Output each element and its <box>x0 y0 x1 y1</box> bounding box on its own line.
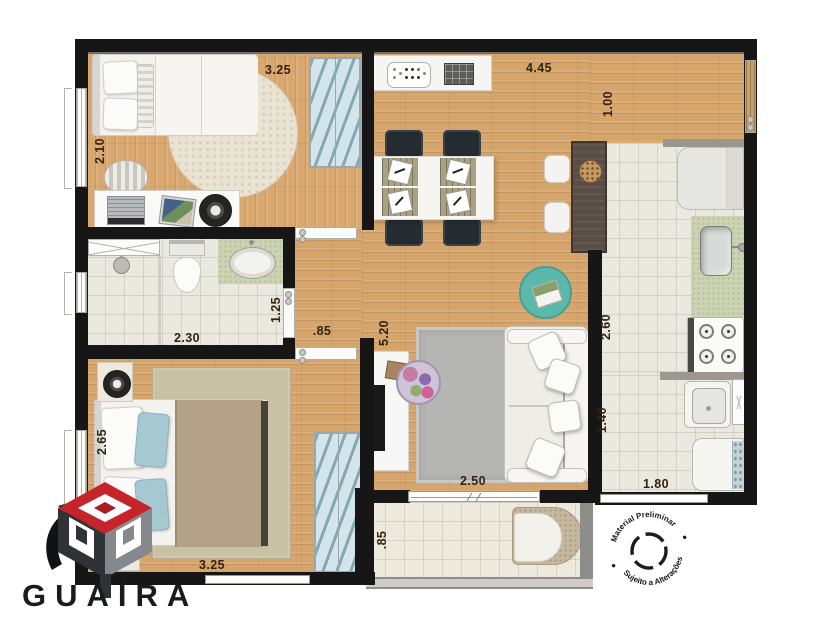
place-setting <box>382 188 418 216</box>
cooktop <box>387 62 431 88</box>
nightstand-wheel-clock <box>103 370 131 398</box>
kitchen-sink <box>700 226 732 276</box>
balcony-right-wall <box>580 502 593 580</box>
door-handle <box>299 357 306 364</box>
cooktop-knobs <box>393 68 396 71</box>
bar-stool <box>544 202 570 233</box>
dim-balcony-depth: .85 <box>375 531 389 550</box>
kitchenette-counter <box>364 55 492 91</box>
door-handle <box>299 236 306 243</box>
wall-top <box>75 39 757 54</box>
bathroom-window-mark <box>64 272 72 315</box>
stove-burner <box>699 349 714 364</box>
shower-head <box>113 257 130 274</box>
bed1-striped-cushion <box>137 64 154 128</box>
bed1-pillow <box>102 60 139 95</box>
place-setting <box>440 158 476 186</box>
bedroom2-nightstand-top <box>97 362 133 402</box>
wall-balcony-west <box>355 488 368 578</box>
guaira-logo-text: GUAÍRA <box>22 578 198 614</box>
plate <box>387 159 414 186</box>
dim-hall-width: .85 <box>313 324 332 338</box>
door-handle <box>299 229 306 236</box>
magazine <box>531 280 563 309</box>
stamp-text-bottom: Sujeito a Alterações <box>620 553 690 594</box>
bar-counter <box>571 141 607 253</box>
dim-living-width: 4.45 <box>526 61 552 75</box>
plate <box>445 159 472 186</box>
teal-pouf <box>519 266 572 319</box>
dim-kitchen-depth: 2.60 <box>599 314 613 340</box>
bedroom1-desk <box>94 190 240 228</box>
stove-side <box>688 318 694 372</box>
dimension-bar-laundry <box>600 494 708 503</box>
laundry-tank <box>684 381 731 428</box>
dim-laundry-width: 1.80 <box>643 477 669 491</box>
bathroom-sink <box>229 247 276 279</box>
dim-laundry-depth: 1.40 <box>595 407 609 433</box>
counter-grill <box>444 63 474 85</box>
dim-living-depth: 5.20 <box>377 320 391 346</box>
stamp-dot <box>683 535 687 539</box>
svg-text:Material Preliminar: Material Preliminar <box>604 502 679 545</box>
bed1-pillow <box>102 97 138 130</box>
door-handle <box>285 291 292 298</box>
stove-burner <box>721 324 736 339</box>
dining-chair <box>385 218 423 246</box>
floorplan-canvas: 3.25 2.10 2.30 1.25 .85 2.65 3.25 <box>0 0 835 626</box>
washer-controls <box>732 441 744 489</box>
bathroom-window <box>76 272 87 313</box>
place-setting <box>440 188 476 216</box>
bedroom1-wardrobe <box>309 57 361 168</box>
stamp-inner-circle <box>628 530 670 572</box>
dining-chair <box>443 218 481 246</box>
dim-entry-width: 1.00 <box>601 91 615 117</box>
dim-living-door: 2.50 <box>460 474 486 488</box>
wall-bathroom-south <box>75 345 295 359</box>
stamp-dot <box>612 564 616 568</box>
floral-pouf <box>396 360 441 405</box>
laptop <box>107 196 145 225</box>
bathroom-faucet <box>249 240 254 245</box>
desk-picture <box>159 196 195 227</box>
desk-wheel-clock <box>199 194 232 227</box>
bed2-footboard <box>261 401 268 546</box>
stove-burner <box>721 349 736 364</box>
dimension-bar-bedroom2 <box>205 575 310 584</box>
door-handle <box>285 298 292 305</box>
sofa <box>504 326 588 483</box>
bedroom1-desk-chair <box>104 160 148 193</box>
dim-bathroom-width: 2.30 <box>174 331 200 345</box>
dining-chair <box>443 130 481 158</box>
balcony-railing <box>366 577 593 589</box>
washing-machine <box>692 438 744 491</box>
wall-bedroom1-south <box>75 227 295 239</box>
decor-bowl <box>579 160 602 183</box>
dining-chair <box>385 130 423 158</box>
preliminary-stamp: Material Preliminar Sujeito a Alterações <box>594 496 704 606</box>
place-setting <box>382 158 418 186</box>
fridge <box>677 147 744 210</box>
svg-text:Sujeito a Alterações: Sujeito a Alterações <box>620 553 690 594</box>
wall-bathroom-east-upper <box>283 238 295 288</box>
plate <box>387 189 413 215</box>
dim-bedroom2-depth: 2.65 <box>95 429 109 455</box>
stove-burner <box>699 324 714 339</box>
door-handle <box>299 349 306 356</box>
toilet-tank <box>169 240 205 256</box>
bar-stool <box>544 155 570 183</box>
bedroom1-single-bed <box>92 54 258 136</box>
bedroom1-window <box>76 88 87 187</box>
window-handle <box>747 124 754 131</box>
bed1-duvet <box>155 56 258 134</box>
wall-living-east <box>588 250 602 492</box>
balcony-armchair <box>512 507 582 565</box>
bed1-duvet-fold <box>201 56 202 134</box>
kitchen-threshold <box>663 139 746 147</box>
bed2-blue-pillow <box>134 412 171 469</box>
plate <box>445 189 471 215</box>
bathroom-shelf <box>88 239 160 256</box>
stamp-text-top: Material Preliminar <box>604 502 679 545</box>
wall-bedroom1-east <box>362 39 374 230</box>
armchair-cushion <box>514 513 562 562</box>
tank-drain <box>706 406 711 411</box>
bathroom-sink-counter <box>218 239 286 284</box>
wall-living-south-west <box>366 490 410 503</box>
wall-bathroom-east-lower <box>283 338 295 358</box>
dim-bathroom-depth: 1.25 <box>269 297 283 323</box>
bedroom1-window-mark <box>64 88 72 189</box>
window-handle <box>747 116 754 123</box>
sofa-pillow <box>547 399 582 434</box>
sliding-door-balcony <box>408 491 540 502</box>
shower-glass-divider <box>158 256 161 347</box>
dim-bedroom1-depth: 2.10 <box>93 138 107 164</box>
dim-bedroom1-width: 3.25 <box>265 63 291 77</box>
bed1-headboard <box>93 55 100 135</box>
kitchen-sink-counter <box>691 216 744 317</box>
stove <box>687 317 744 373</box>
